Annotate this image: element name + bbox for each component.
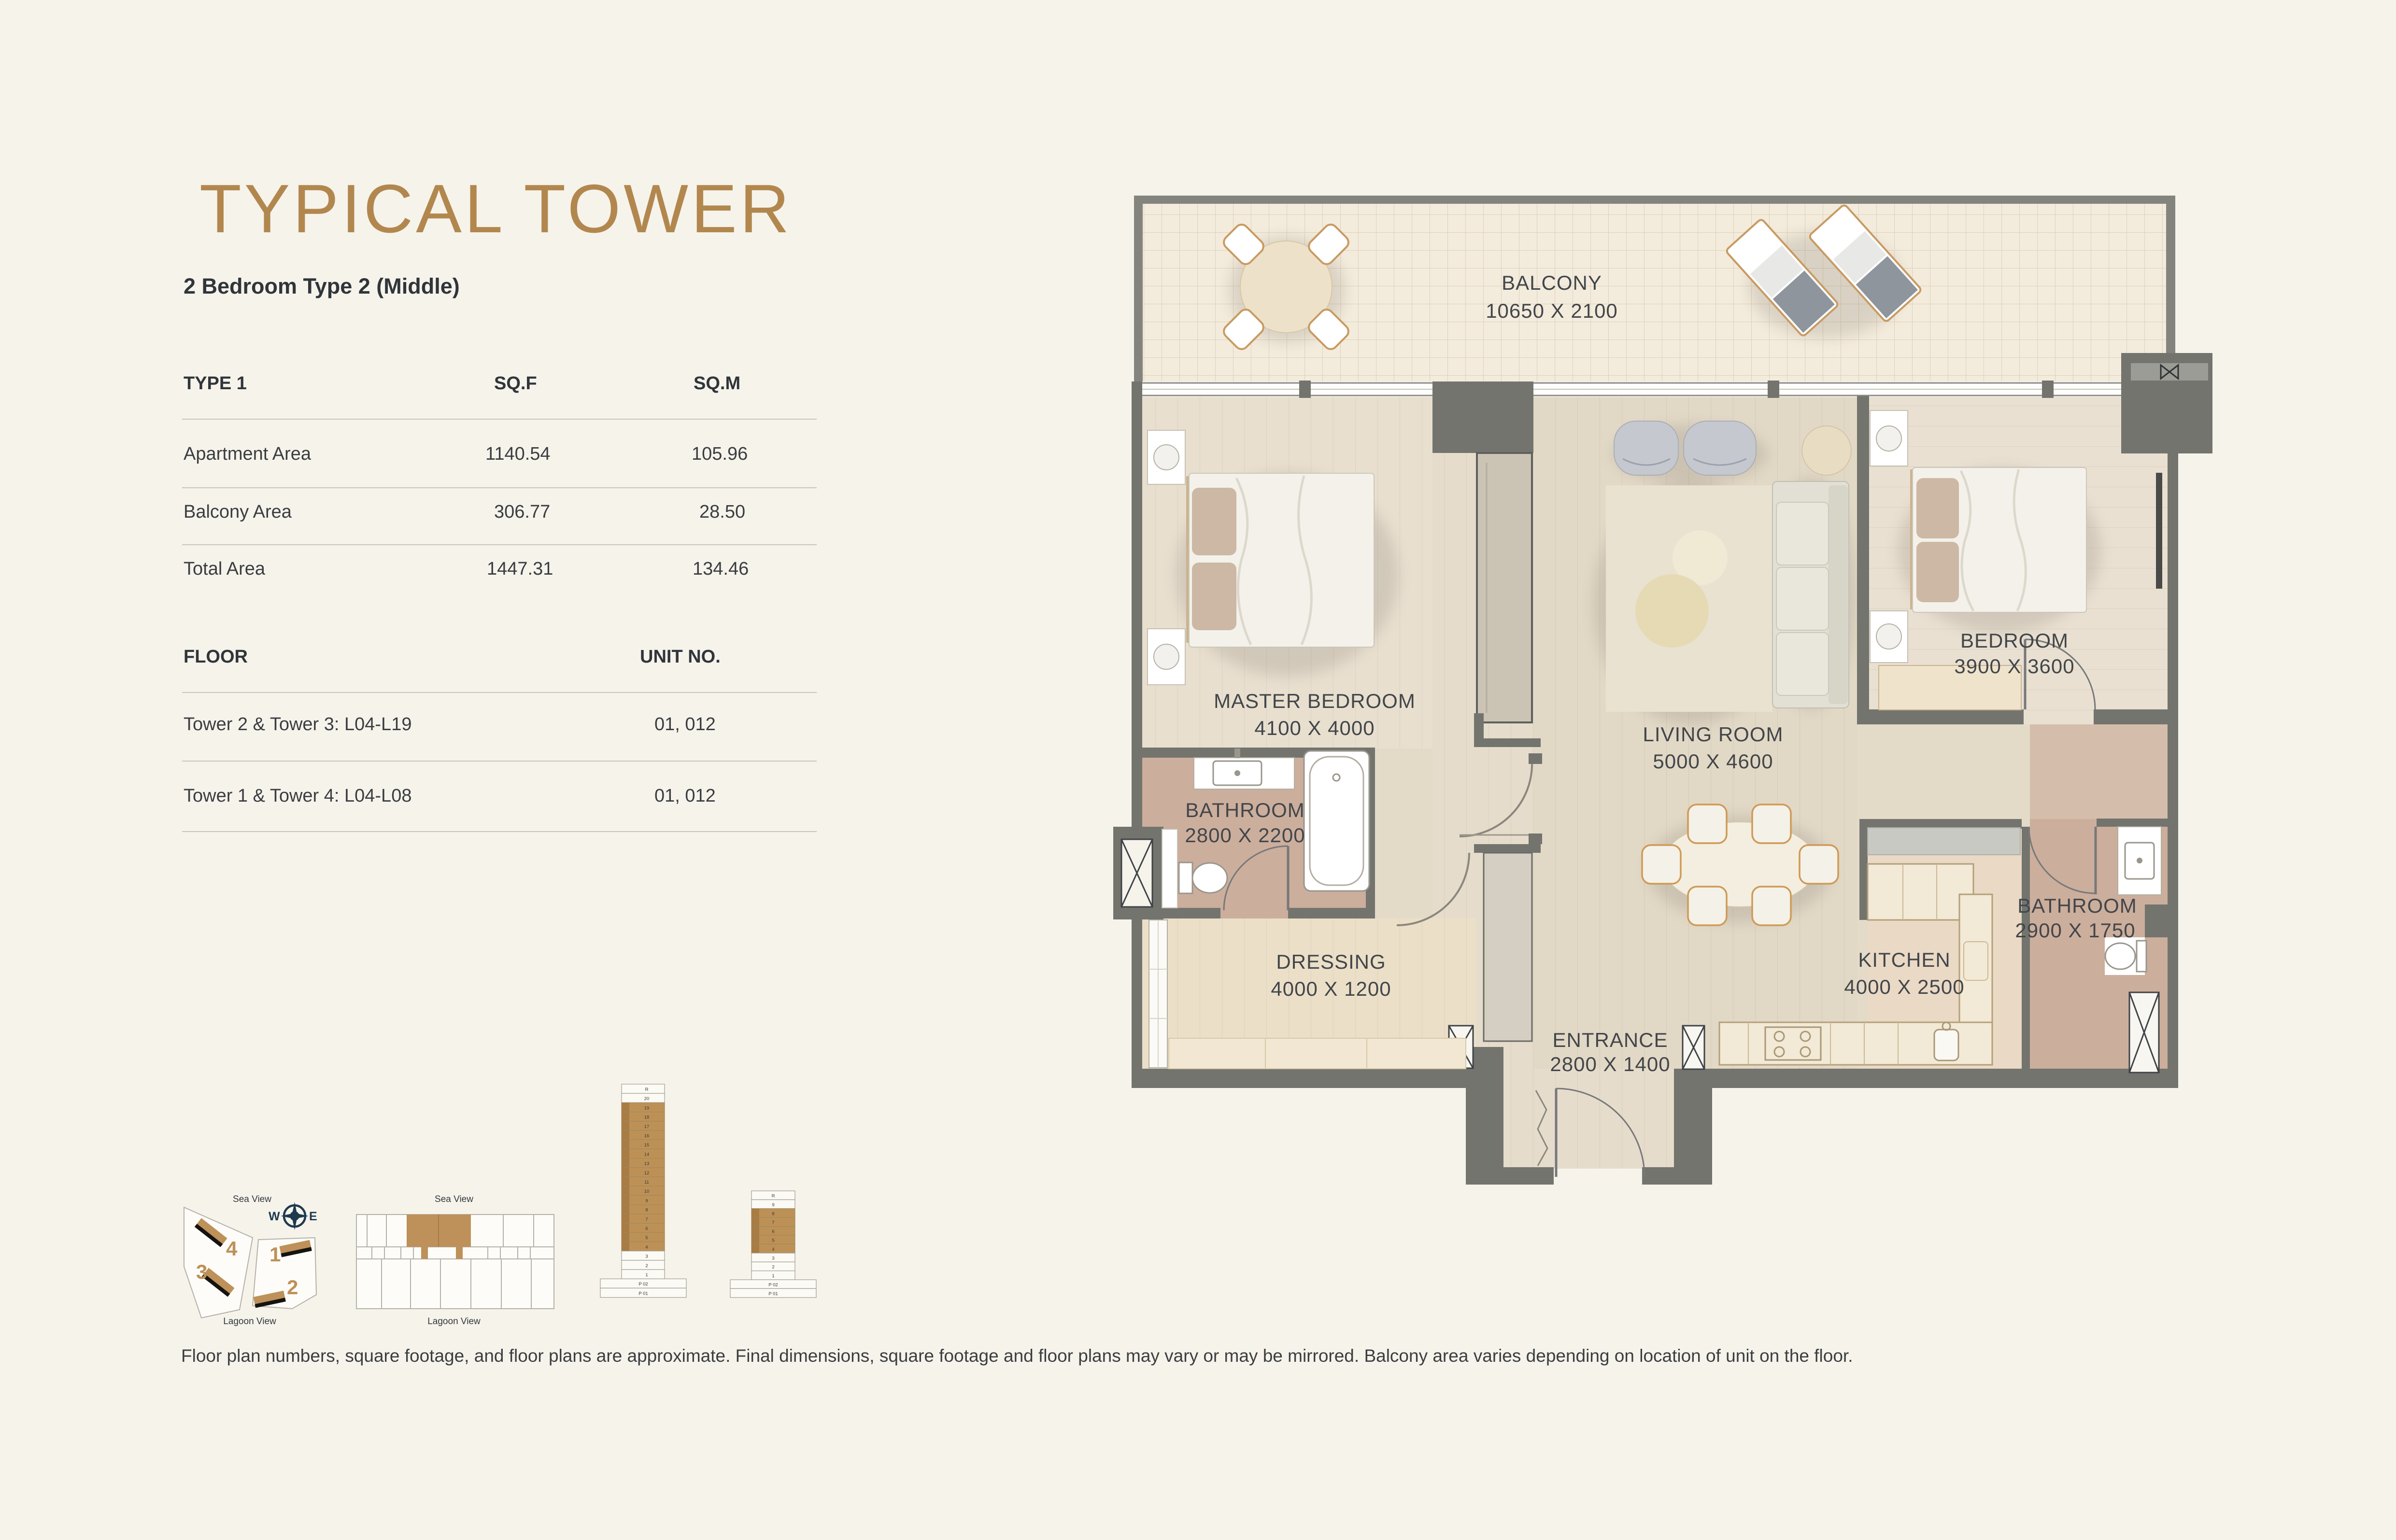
svg-text:2800 X 1400: 2800 X 1400 xyxy=(1550,1053,1670,1075)
svg-text:SQ.F: SQ.F xyxy=(494,373,537,394)
svg-text:4: 4 xyxy=(772,1247,774,1252)
svg-text:2900 X 1750: 2900 X 1750 xyxy=(2015,919,2135,942)
svg-text:2: 2 xyxy=(645,1263,648,1269)
svg-text:KITCHEN: KITCHEN xyxy=(1858,948,1950,971)
svg-text:11: 11 xyxy=(644,1180,649,1185)
svg-text:19: 19 xyxy=(644,1105,650,1111)
svg-text:7: 7 xyxy=(645,1217,648,1222)
svg-text:BATHROOM: BATHROOM xyxy=(1185,799,1305,821)
svg-text:105.96: 105.96 xyxy=(692,444,748,464)
svg-text:01, 012: 01, 012 xyxy=(654,786,716,806)
svg-text:9: 9 xyxy=(772,1202,774,1208)
svg-text:Lagoon View: Lagoon View xyxy=(223,1316,276,1327)
svg-text:13: 13 xyxy=(644,1161,650,1167)
svg-text:TYPICAL TOWER: TYPICAL TOWER xyxy=(199,170,792,247)
svg-text:SQ.M: SQ.M xyxy=(694,373,740,394)
svg-text:Lagoon View: Lagoon View xyxy=(427,1316,481,1327)
svg-text:LIVING ROOM: LIVING ROOM xyxy=(1643,723,1783,746)
svg-text:P 01: P 01 xyxy=(638,1291,648,1296)
svg-text:Tower 1 & Tower 4: L04-L08: Tower 1 & Tower 4: L04-L08 xyxy=(184,786,411,806)
svg-text:Total Area: Total Area xyxy=(184,559,266,579)
svg-text:Sea View: Sea View xyxy=(435,1194,473,1204)
svg-text:5: 5 xyxy=(645,1235,648,1241)
svg-text:Balcony Area: Balcony Area xyxy=(184,502,292,522)
svg-text:3: 3 xyxy=(645,1254,648,1259)
svg-text:12: 12 xyxy=(644,1171,650,1176)
svg-text:MASTER BEDROOM: MASTER BEDROOM xyxy=(1214,690,1416,712)
svg-text:DRESSING: DRESSING xyxy=(1276,950,1386,973)
svg-text:8: 8 xyxy=(645,1208,648,1213)
svg-text:6: 6 xyxy=(772,1229,774,1234)
svg-text:UNIT NO.: UNIT NO. xyxy=(640,647,721,667)
svg-text:4: 4 xyxy=(226,1237,238,1260)
svg-text:4000 X 1200: 4000 X 1200 xyxy=(1271,977,1391,1000)
svg-text:2: 2 xyxy=(287,1276,298,1299)
svg-text:BEDROOM: BEDROOM xyxy=(1960,629,2069,652)
svg-text:17: 17 xyxy=(644,1124,650,1130)
svg-text:2 Bedroom Type 2 (Middle): 2 Bedroom Type 2 (Middle) xyxy=(184,274,460,298)
svg-text:P 01: P 01 xyxy=(768,1291,778,1297)
svg-text:R: R xyxy=(772,1194,775,1199)
svg-text:3900 X 3600: 3900 X 3600 xyxy=(1954,655,2074,678)
svg-text:P 02: P 02 xyxy=(768,1283,778,1288)
svg-text:01, 012: 01, 012 xyxy=(654,714,716,735)
svg-text:4000 X 2500: 4000 X 2500 xyxy=(1844,975,1964,998)
svg-text:BATHROOM: BATHROOM xyxy=(2017,894,2137,917)
svg-text:R: R xyxy=(645,1087,649,1092)
svg-text:1: 1 xyxy=(645,1272,648,1278)
svg-text:P 02: P 02 xyxy=(638,1282,648,1287)
svg-text:20: 20 xyxy=(644,1096,650,1102)
svg-text:10: 10 xyxy=(644,1189,650,1194)
svg-text:2: 2 xyxy=(772,1265,774,1270)
svg-text:5000 X 4600: 5000 X 4600 xyxy=(1653,750,1773,773)
svg-text:3: 3 xyxy=(196,1260,207,1283)
svg-text:1447.31: 1447.31 xyxy=(487,559,553,579)
svg-text:18: 18 xyxy=(644,1115,650,1120)
svg-text:Apartment Area: Apartment Area xyxy=(184,444,312,464)
svg-text:TYPE 1: TYPE 1 xyxy=(184,373,247,394)
svg-text:8: 8 xyxy=(772,1211,774,1216)
svg-text:16: 16 xyxy=(644,1133,650,1139)
svg-text:FLOOR: FLOOR xyxy=(184,647,248,667)
svg-text:28.50: 28.50 xyxy=(699,502,745,522)
svg-text:Floor plan numbers, square foo: Floor plan numbers, square footage, and … xyxy=(181,1346,1853,1366)
svg-text:Tower 2 & Tower 3: L04-L19: Tower 2 & Tower 3: L04-L19 xyxy=(184,714,411,735)
svg-text:10650 X 2100: 10650 X 2100 xyxy=(1486,299,1618,322)
svg-text:7: 7 xyxy=(772,1220,774,1226)
svg-text:Sea View: Sea View xyxy=(233,1194,271,1204)
svg-text:15: 15 xyxy=(644,1143,650,1148)
svg-text:4: 4 xyxy=(645,1244,648,1250)
svg-text:ENTRANCE: ENTRANCE xyxy=(1552,1029,1668,1051)
svg-text:1140.54: 1140.54 xyxy=(485,444,551,464)
svg-text:W: W xyxy=(269,1210,280,1223)
svg-text:BALCONY: BALCONY xyxy=(1502,271,1602,294)
svg-text:5: 5 xyxy=(772,1238,774,1243)
svg-text:134.46: 134.46 xyxy=(693,559,749,579)
svg-text:4100 X 4000: 4100 X 4000 xyxy=(1254,717,1375,739)
svg-text:1: 1 xyxy=(772,1273,774,1279)
svg-text:2800 X 2200: 2800 X 2200 xyxy=(1185,824,1305,847)
svg-text:1: 1 xyxy=(269,1243,281,1266)
svg-text:E: E xyxy=(309,1210,317,1223)
svg-text:306.77: 306.77 xyxy=(494,502,550,522)
svg-text:3: 3 xyxy=(772,1256,774,1261)
svg-text:9: 9 xyxy=(645,1198,648,1203)
svg-text:6: 6 xyxy=(645,1226,648,1231)
svg-text:14: 14 xyxy=(644,1152,650,1157)
